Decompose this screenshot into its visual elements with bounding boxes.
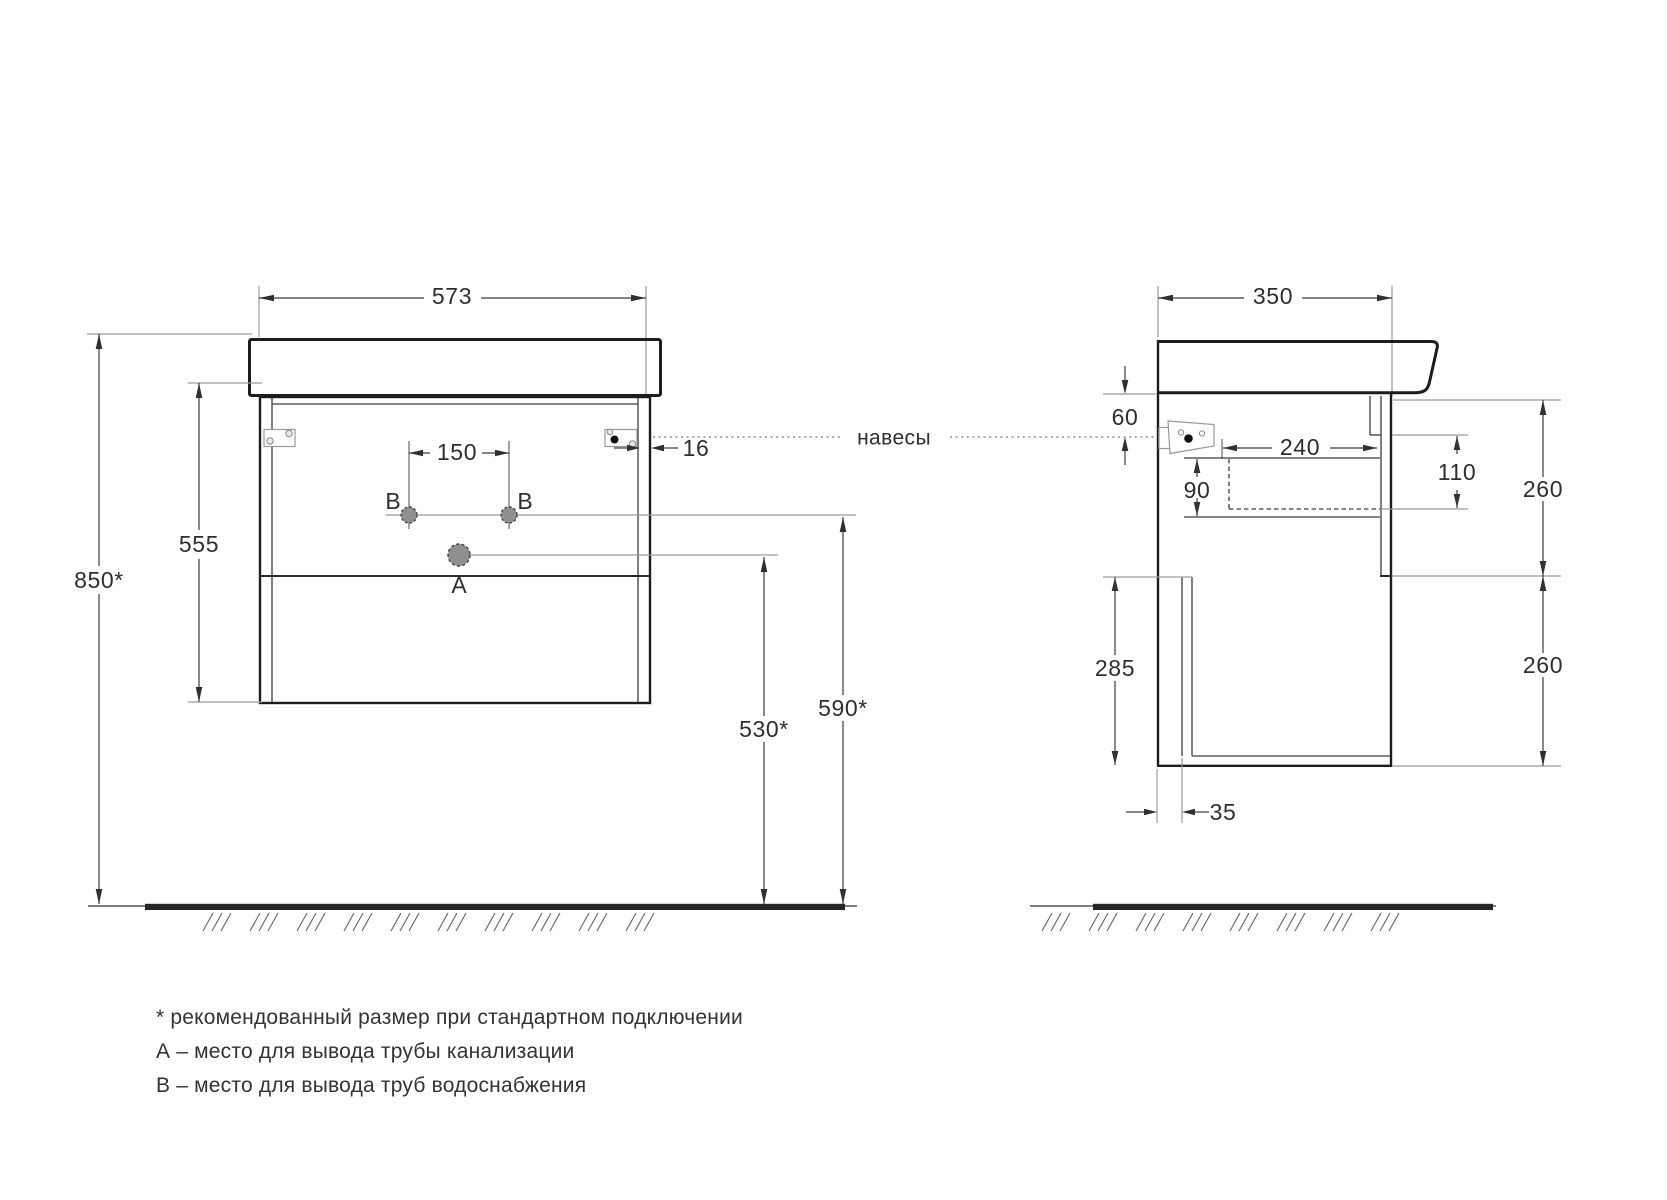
dim-total-height: 850* bbox=[74, 567, 124, 593]
dim-hanger-drop: 60 bbox=[1112, 404, 1139, 430]
dim-front-clearance: 110 bbox=[1438, 459, 1476, 485]
floor-bar-right bbox=[1093, 904, 1493, 910]
arrowhead bbox=[1363, 445, 1377, 452]
ground-hatch-left bbox=[203, 913, 654, 931]
arrowhead-right bbox=[631, 295, 646, 302]
arrowhead bbox=[1158, 295, 1173, 302]
arrowhead bbox=[840, 517, 847, 532]
footnote-a: А – место для вывода трубы канализации bbox=[156, 1040, 574, 1063]
arrowhead bbox=[761, 557, 768, 572]
hanger-right bbox=[605, 429, 637, 447]
washbasin-profile bbox=[1158, 342, 1437, 393]
dim-siphon-cutout: 90 bbox=[1184, 477, 1211, 503]
dim-panel-thickness: 16 bbox=[683, 435, 710, 461]
dim-back-offset: 35 bbox=[1210, 799, 1237, 825]
dim-water-height: 590* bbox=[818, 695, 868, 721]
footnotes: * рекомендованный размер при стандартном… bbox=[156, 1006, 743, 1097]
water-outlet-hole bbox=[501, 507, 517, 523]
arrowhead bbox=[96, 889, 103, 904]
arrowhead bbox=[761, 889, 768, 904]
technical-drawing-page: 573 16 150 bbox=[0, 0, 1667, 1200]
arrowhead bbox=[96, 334, 103, 349]
footnote-b: В – место для вывода труб водоснабжения bbox=[156, 1074, 586, 1097]
hangers-callout: навесы bbox=[653, 427, 1156, 450]
label-b-right: B bbox=[517, 488, 532, 514]
label-a: A bbox=[451, 572, 467, 598]
hanger-pin bbox=[1184, 434, 1193, 443]
label-b-left: B bbox=[385, 488, 400, 514]
arrowhead bbox=[1122, 380, 1129, 394]
dim-upper-drawer: 260 bbox=[1523, 476, 1563, 502]
hangers-label: навесы bbox=[857, 427, 931, 450]
arrowhead bbox=[1223, 445, 1237, 452]
side-view: 350 60 240 bbox=[1095, 283, 1563, 825]
arrowhead bbox=[651, 445, 664, 452]
washbasin-front bbox=[250, 340, 661, 396]
arrowhead bbox=[495, 450, 509, 457]
dim-drawer-depth: 240 bbox=[1280, 434, 1320, 460]
dim-lower-drawer: 260 bbox=[1523, 652, 1563, 678]
ground-hatch-right bbox=[1042, 913, 1399, 931]
floor-bar-left bbox=[145, 904, 845, 910]
arrowhead bbox=[1122, 437, 1129, 451]
dim-depth: 350 bbox=[1253, 283, 1293, 309]
dim-carcass-height: 555 bbox=[179, 531, 219, 557]
footnote-asterisk: * рекомендованный размер при стандартном… bbox=[156, 1006, 743, 1029]
dim-front-width: 573 bbox=[432, 283, 472, 309]
arrowhead bbox=[409, 450, 423, 457]
side-hanger bbox=[1159, 421, 1214, 454]
arrowhead bbox=[1540, 400, 1547, 415]
arrowhead bbox=[1144, 809, 1157, 816]
dim-back-clearance: 285 bbox=[1095, 655, 1135, 681]
arrowhead bbox=[196, 383, 203, 398]
arrowhead bbox=[196, 687, 203, 702]
arrowhead-left bbox=[259, 295, 274, 302]
dim-drain-height: 530* bbox=[739, 716, 789, 742]
arrowhead bbox=[1540, 751, 1547, 766]
water-outlet-hole bbox=[401, 507, 417, 523]
front-view: 573 16 150 bbox=[74, 283, 868, 904]
arrowhead bbox=[1540, 576, 1547, 591]
drain-outlet-hole bbox=[448, 544, 470, 566]
arrowhead bbox=[1182, 809, 1195, 816]
hanger-pin bbox=[611, 436, 619, 444]
hanger-left bbox=[264, 430, 295, 447]
vanity-installation-drawing: 573 16 150 bbox=[0, 0, 1667, 1200]
arrowhead bbox=[840, 889, 847, 904]
arrowhead bbox=[1377, 295, 1392, 302]
arrowhead bbox=[1540, 561, 1547, 576]
dim-holes-spacing: 150 bbox=[437, 439, 477, 465]
floor bbox=[88, 904, 1496, 931]
